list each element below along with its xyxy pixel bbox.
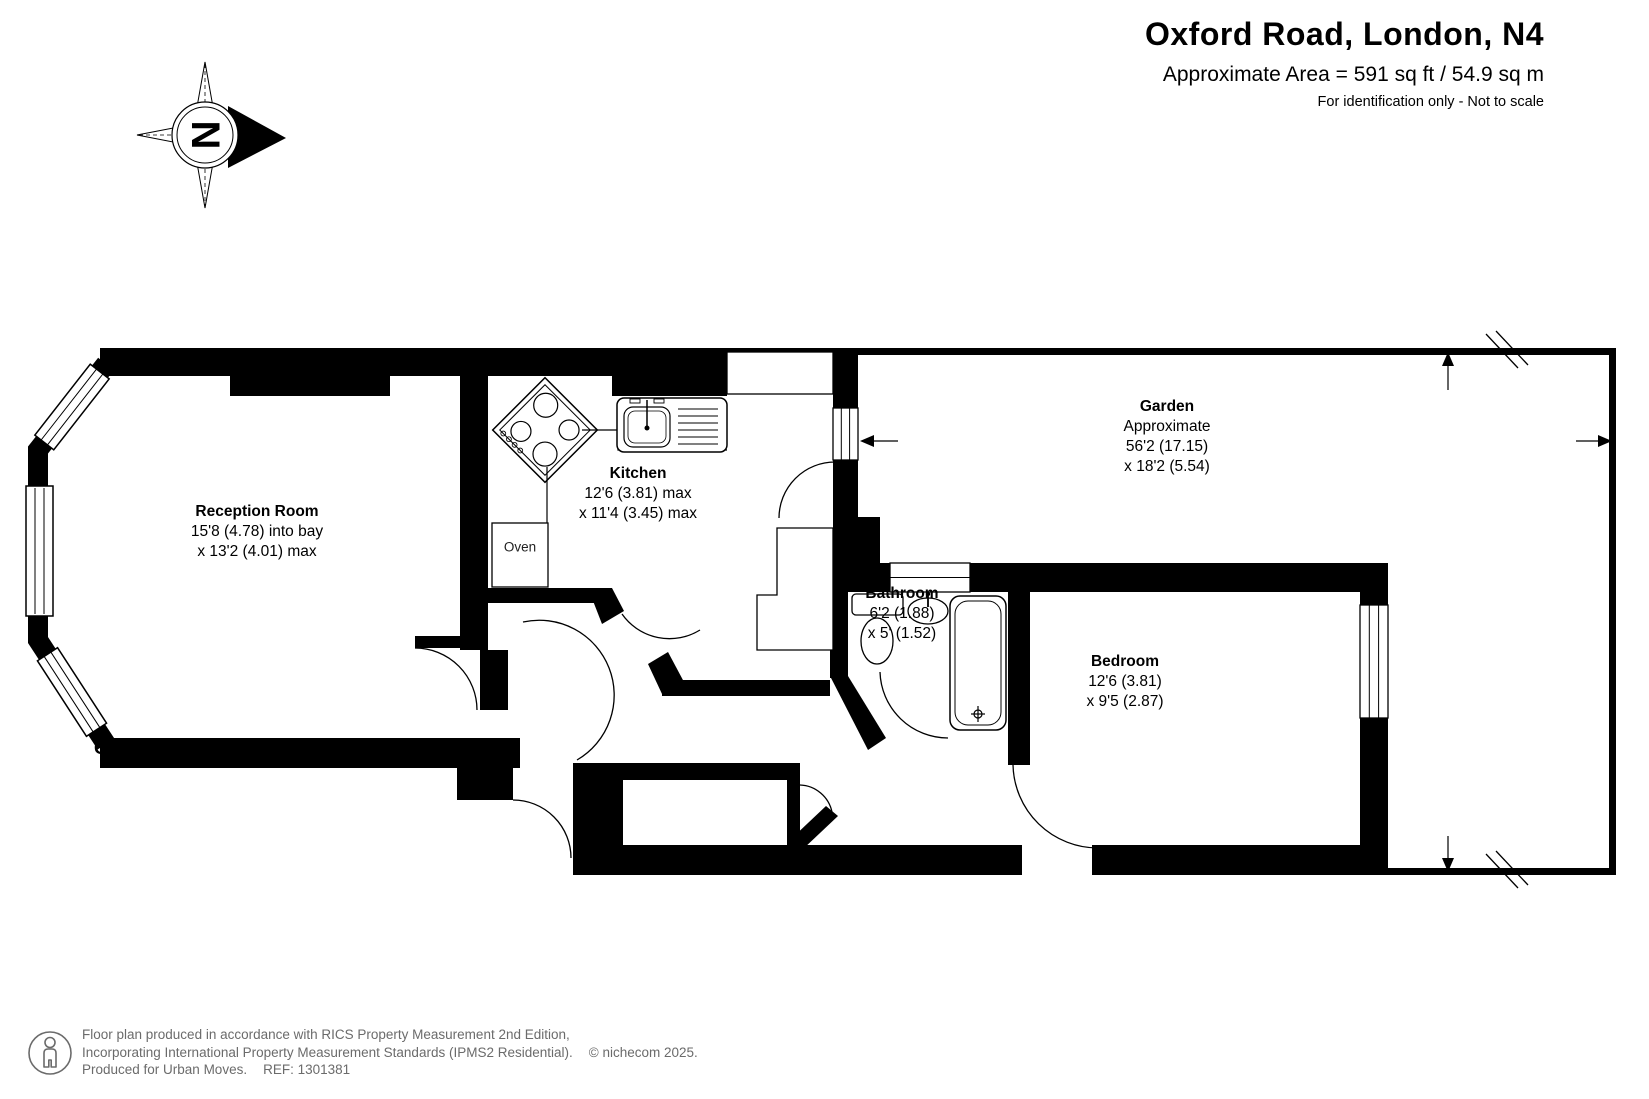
footer: Floor plan produced in accordance with R… — [82, 1026, 698, 1079]
reception-room-name: Reception Room — [191, 502, 323, 522]
wall-openings — [727, 352, 1388, 718]
bedroom-dim1: 12'6 (3.81) — [1086, 672, 1163, 692]
arrow-right-icon — [1576, 435, 1612, 447]
bay-window — [26, 364, 109, 744]
bathroom-door-arc — [880, 672, 948, 738]
entry-arrow-left-icon — [860, 435, 898, 447]
floor-label: GROUND FLOOR — [94, 738, 246, 759]
floorplan-page: N — [0, 0, 1649, 1099]
bay-window-pane-bottom — [37, 648, 106, 737]
break-marks — [1486, 331, 1528, 888]
bedroom-dim2: x 9'5 (2.87) — [1086, 692, 1163, 712]
bathtub-icon — [950, 596, 1006, 730]
bay-window-pane-middle — [26, 486, 53, 616]
reception-room-dim2: x 13'2 (4.01) max — [191, 542, 323, 562]
bathroom-dim1: 6'2 (1.88) — [865, 604, 938, 624]
oven-unit — [492, 523, 548, 587]
bedroom-label: Bedroom 12'6 (3.81) x 9'5 (2.87) — [1086, 652, 1163, 712]
garden-dim1: Approximate — [1123, 417, 1210, 437]
back-door-arc — [779, 462, 835, 518]
bedroom-window — [1360, 605, 1388, 718]
header: Oxford Road, London, N4 Approximate Area… — [1145, 16, 1544, 110]
compass-icon: N — [137, 62, 286, 208]
garden-name: Garden — [1123, 397, 1210, 417]
bay-window-pane-top — [35, 364, 109, 450]
page-title: Oxford Road, London, N4 — [1145, 16, 1544, 53]
person-icon — [27, 1027, 73, 1079]
footer-line3: Produced for Urban Moves.REF: 1301381 — [82, 1061, 698, 1079]
bedroom-name: Bedroom — [1086, 652, 1163, 672]
footer-line2: Incorporating International Property Mea… — [82, 1044, 698, 1062]
kitchen-name: Kitchen — [579, 464, 697, 484]
area-line: Approximate Area = 591 sq ft / 54.9 sq m — [1145, 63, 1544, 87]
front-door-arc — [513, 800, 571, 858]
bathroom-name: Bathroom — [865, 584, 938, 604]
bathroom-label: Bathroom 6'2 (1.88) x 5' (1.52) — [865, 584, 938, 644]
footer-line1: Floor plan produced in accordance with R… — [82, 1026, 698, 1044]
reception-room-dim1: 15'8 (4.78) into bay — [191, 522, 323, 542]
compass-letter: N — [183, 121, 227, 150]
back-door — [833, 408, 858, 460]
kitchen-door-arc — [622, 614, 700, 639]
reception-room-label: Reception Room 15'8 (4.78) into bay x 13… — [191, 502, 323, 562]
bathroom-dim2: x 5' (1.52) — [865, 624, 938, 644]
sink-icon — [617, 398, 727, 452]
bedroom-door-arc — [1013, 765, 1098, 848]
reception-door-arc — [415, 648, 477, 710]
garden-label: Garden Approximate 56'2 (17.15) x 18'2 (… — [1123, 397, 1210, 477]
kitchen-dim1: 12'6 (3.81) max — [579, 484, 697, 504]
garden-dim3: x 18'2 (5.54) — [1123, 457, 1210, 477]
footer-produced-for: Produced for Urban Moves. — [82, 1062, 247, 1077]
hall-door-arc — [523, 620, 614, 760]
scale-disclaimer: For identification only - Not to scale — [1145, 94, 1544, 110]
footer-copyright: © nichecom 2025. — [589, 1045, 698, 1060]
footer-ref: REF: 1301381 — [263, 1062, 350, 1077]
arrow-down-icon — [1442, 836, 1454, 872]
kitchen-dim2: x 11'4 (3.45) max — [579, 504, 697, 524]
oven-label: Oven — [504, 540, 536, 555]
footer-standards: Incorporating International Property Mea… — [82, 1045, 573, 1060]
rear-lobby — [757, 528, 833, 650]
rear-recess — [727, 352, 833, 394]
kitchen-label: Kitchen 12'6 (3.81) max x 11'4 (3.45) ma… — [579, 464, 697, 524]
arrow-up-icon — [1442, 352, 1454, 390]
garden-dim2: 56'2 (17.15) — [1123, 437, 1210, 457]
